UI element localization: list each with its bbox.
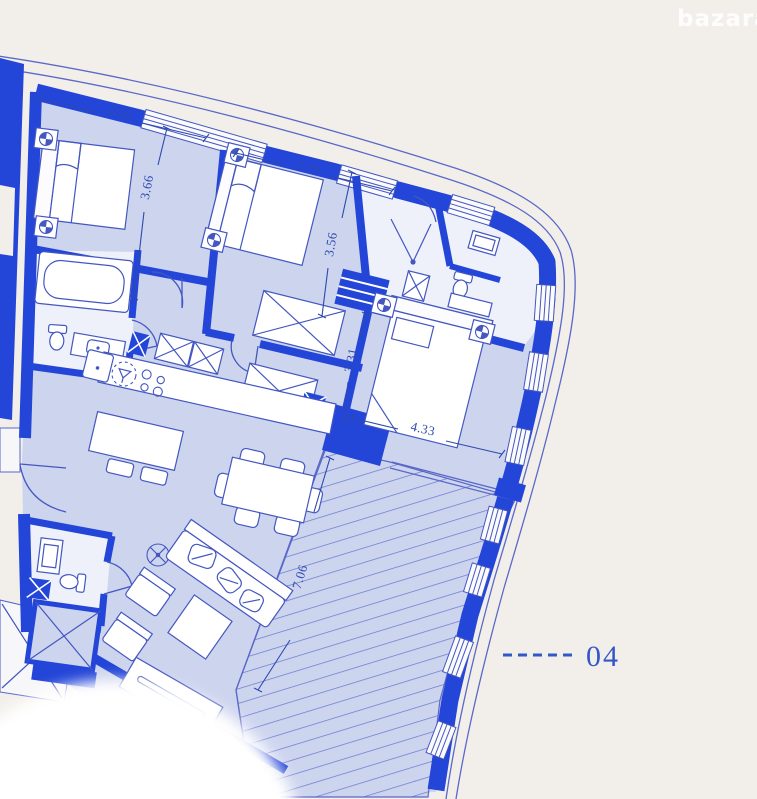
bed-icon [34,139,135,230]
floorplan-screenshot: 4.66 3.66 3.70 3.56 3.31 4.33 [0,0,757,799]
nightstand-icon [34,128,58,151]
window [534,284,555,321]
nightstand-icon [34,216,58,239]
unit-number-label: 04 [586,640,620,673]
floor-plan: 4.66 3.66 3.70 3.56 3.31 4.33 [0,0,757,799]
watermark: bazara [677,6,757,32]
shaft-icon [27,578,52,601]
sink-mirror-icon [37,538,63,574]
bathtub-icon [35,251,134,313]
